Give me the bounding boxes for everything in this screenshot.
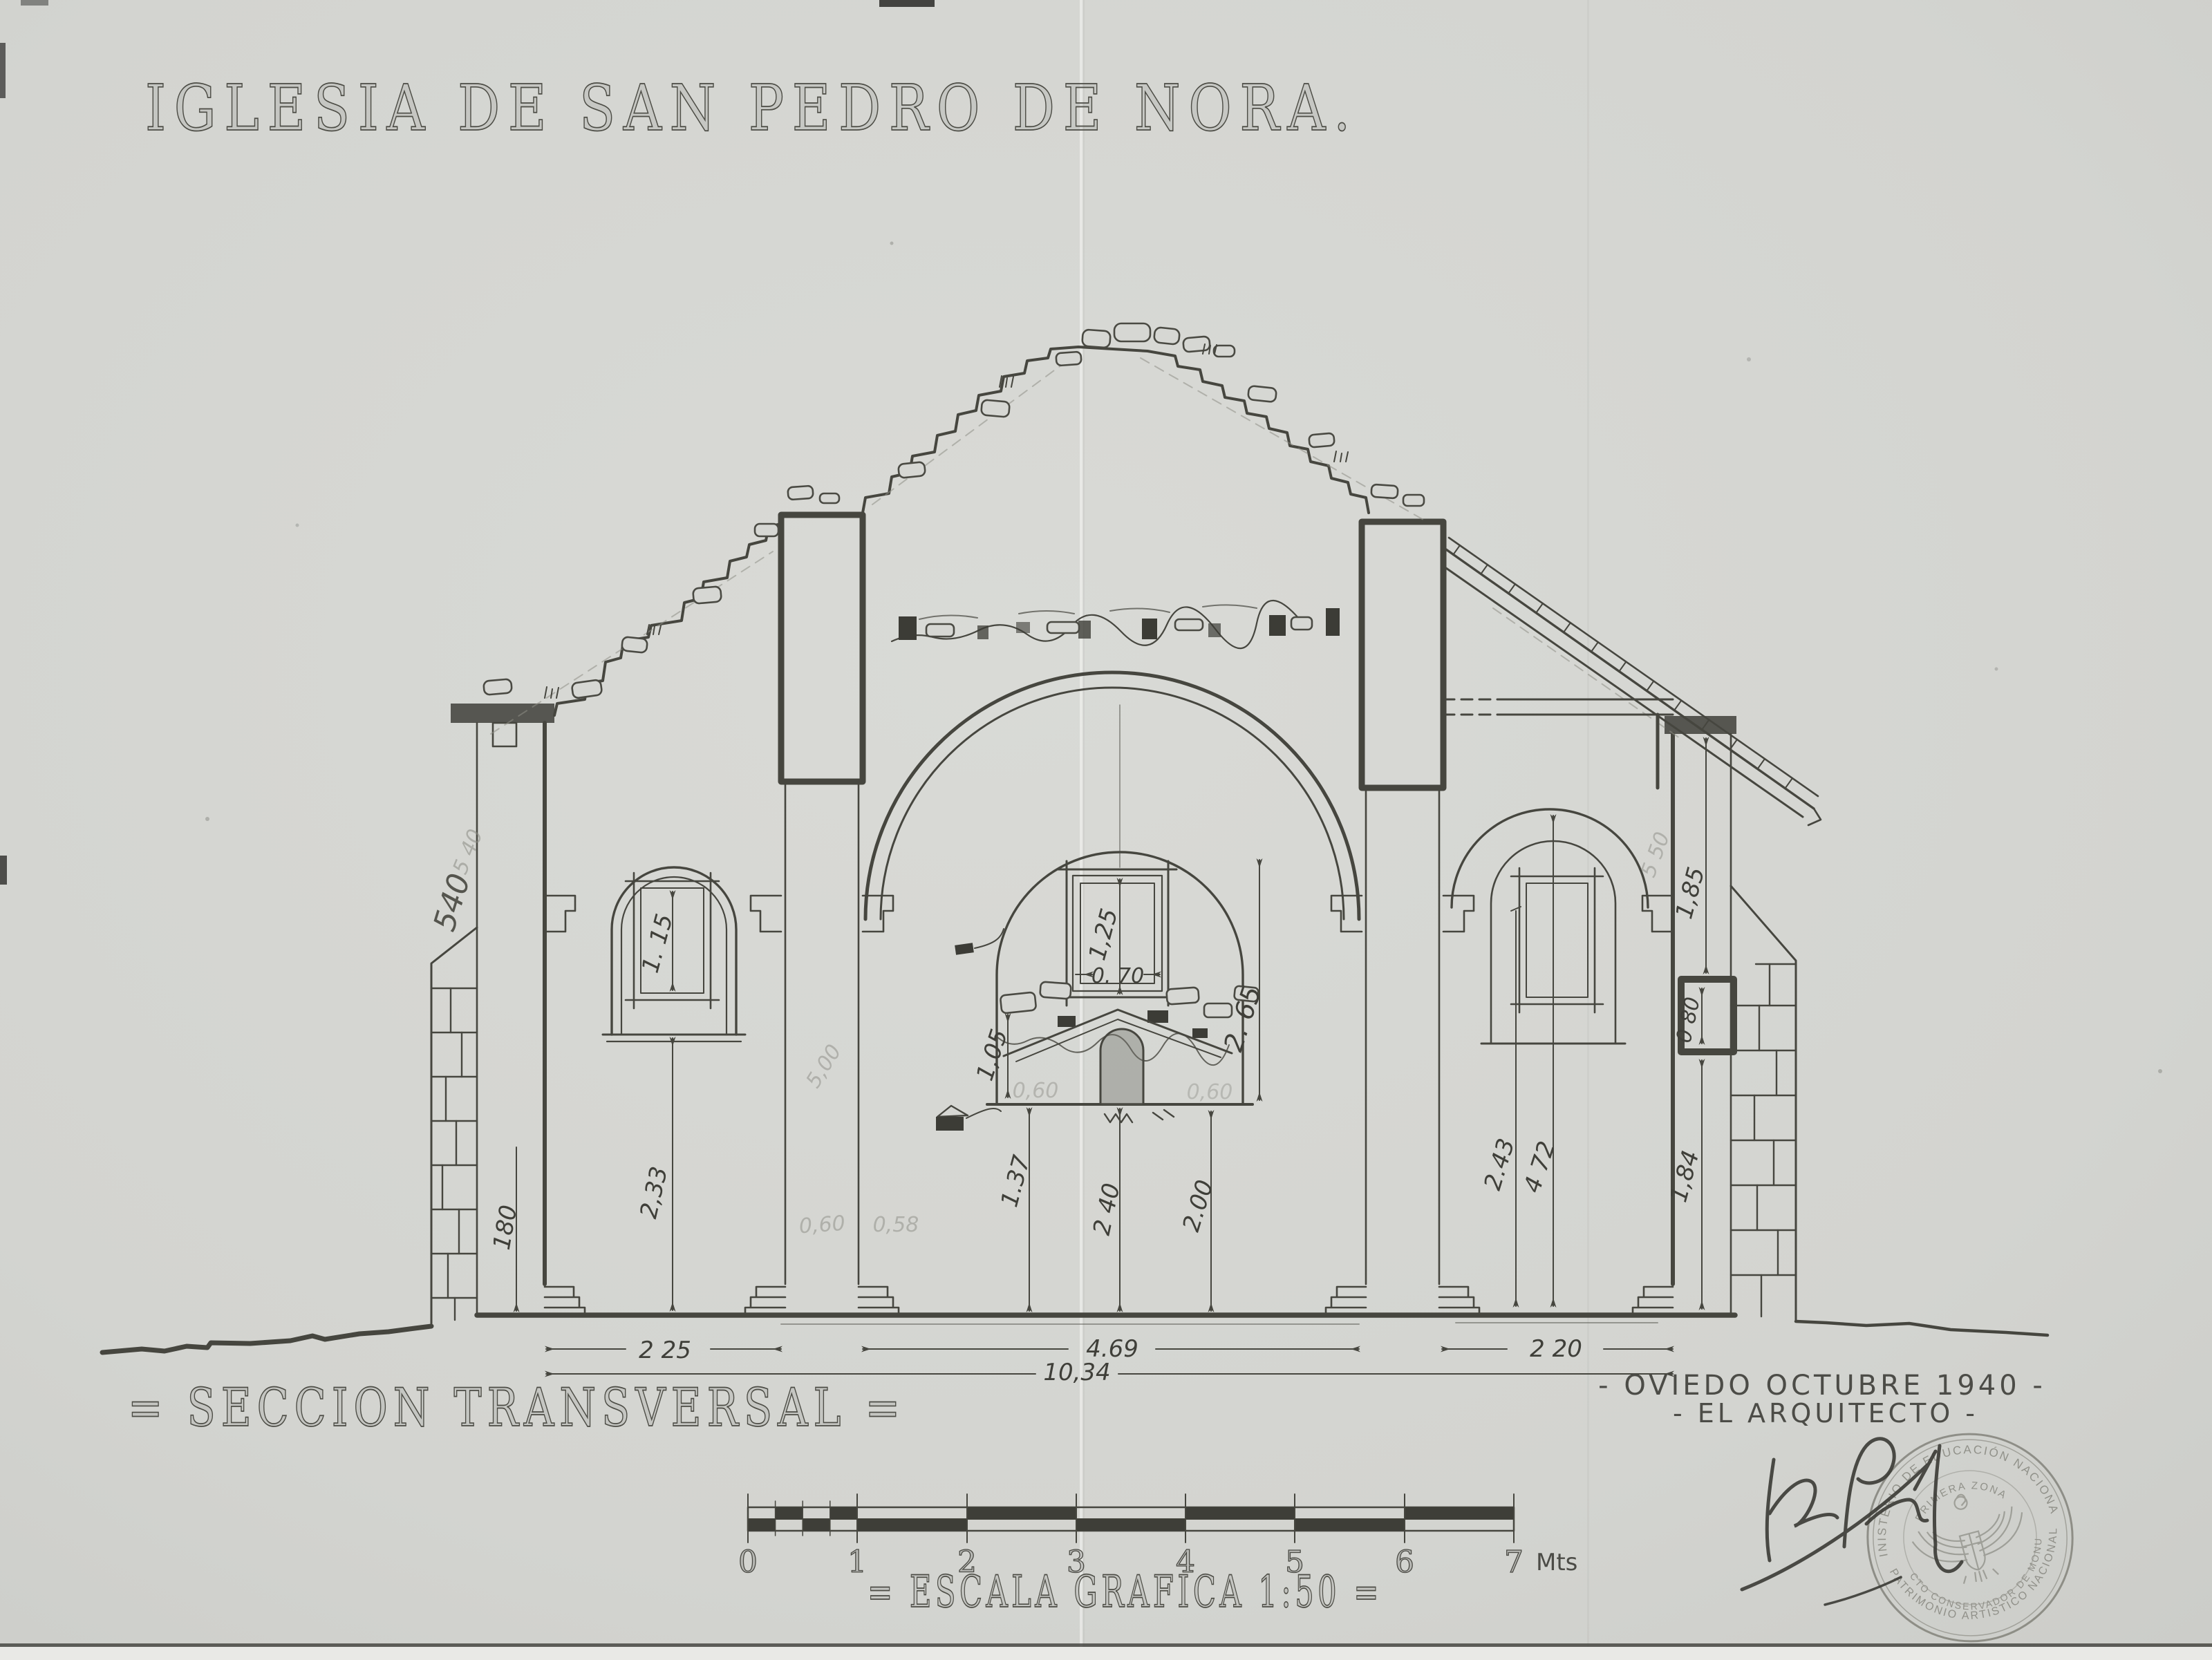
pencil-note-e: 0,60	[1187, 1080, 1233, 1104]
pencil-note-b: 0,60	[798, 1211, 846, 1239]
svg-text:0: 0	[738, 1545, 758, 1580]
pencil-note-d: 0,60	[1013, 1079, 1059, 1103]
sheet-title: IGLESIA DE SAN PEDRO DE NORA.	[145, 71, 1358, 145]
section-label: = SECCION TRANSVERSAL =	[128, 1377, 906, 1438]
svg-text:4: 4	[1176, 1545, 1195, 1580]
scale-label: = ESCALA GRAFICA 1:50 =	[868, 1567, 1382, 1618]
svg-text:1: 1	[847, 1545, 867, 1580]
svg-text:7: 7	[1504, 1545, 1524, 1580]
architect-label: - EL ARQUITECTO -	[1673, 1398, 1978, 1428]
pencil-note-c: 0,58	[873, 1213, 919, 1237]
section-drawing: 2 25 4.69 2 20 10,34 540 5 40 180 1. 15 …	[0, 0, 2212, 1660]
svg-text:5: 5	[1285, 1545, 1304, 1580]
svg-text:6: 6	[1395, 1545, 1414, 1580]
dim-bay-right: 2 20	[1530, 1335, 1582, 1363]
scale-unit-label: Mts	[1536, 1549, 1577, 1576]
dim-total-width: 10,34	[1043, 1359, 1110, 1386]
place-date-label: - OVIEDO OCTUBRE 1940 -	[1598, 1370, 2046, 1402]
dim-bay-left: 2 25	[639, 1337, 691, 1364]
drawing-sheet: 2 25 4.69 2 20 10,34 540 5 40 180 1. 15 …	[0, 0, 2212, 1660]
svg-text:3: 3	[1067, 1545, 1086, 1580]
svg-text:2: 2	[957, 1545, 977, 1580]
dim-nave-window-width: 0. 70	[1091, 964, 1144, 988]
